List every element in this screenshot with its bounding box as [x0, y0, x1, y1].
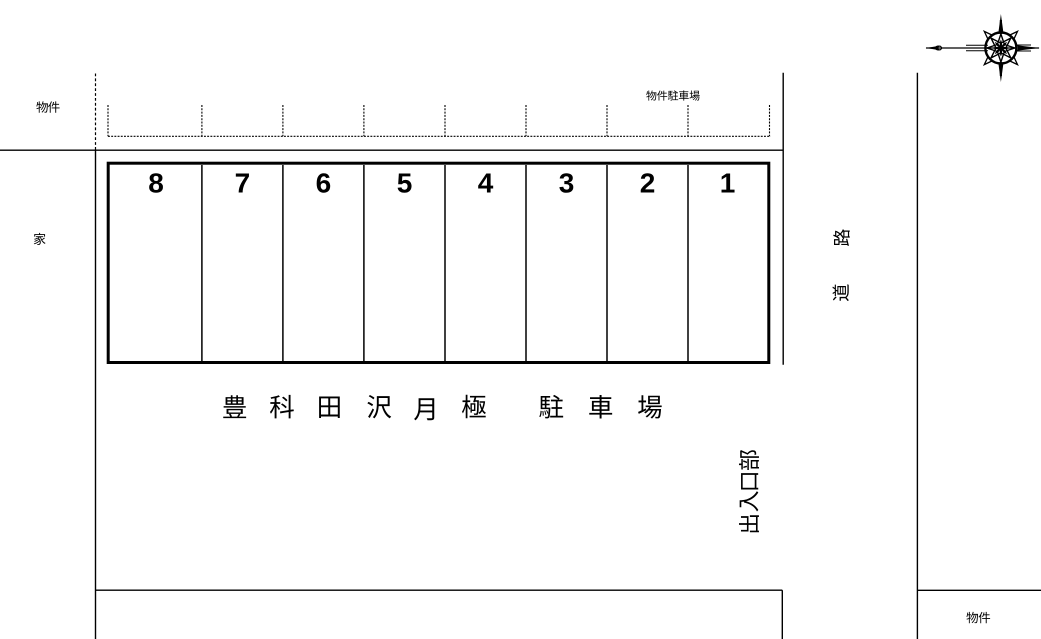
- svg-text:1: 1: [720, 168, 736, 199]
- svg-text:7: 7: [235, 168, 251, 199]
- svg-text:2: 2: [640, 168, 656, 199]
- svg-text:4: 4: [478, 168, 494, 199]
- svg-text:3: 3: [559, 168, 575, 199]
- svg-text:6: 6: [316, 168, 332, 199]
- svg-text:8: 8: [148, 168, 164, 199]
- svg-text:5: 5: [397, 168, 413, 199]
